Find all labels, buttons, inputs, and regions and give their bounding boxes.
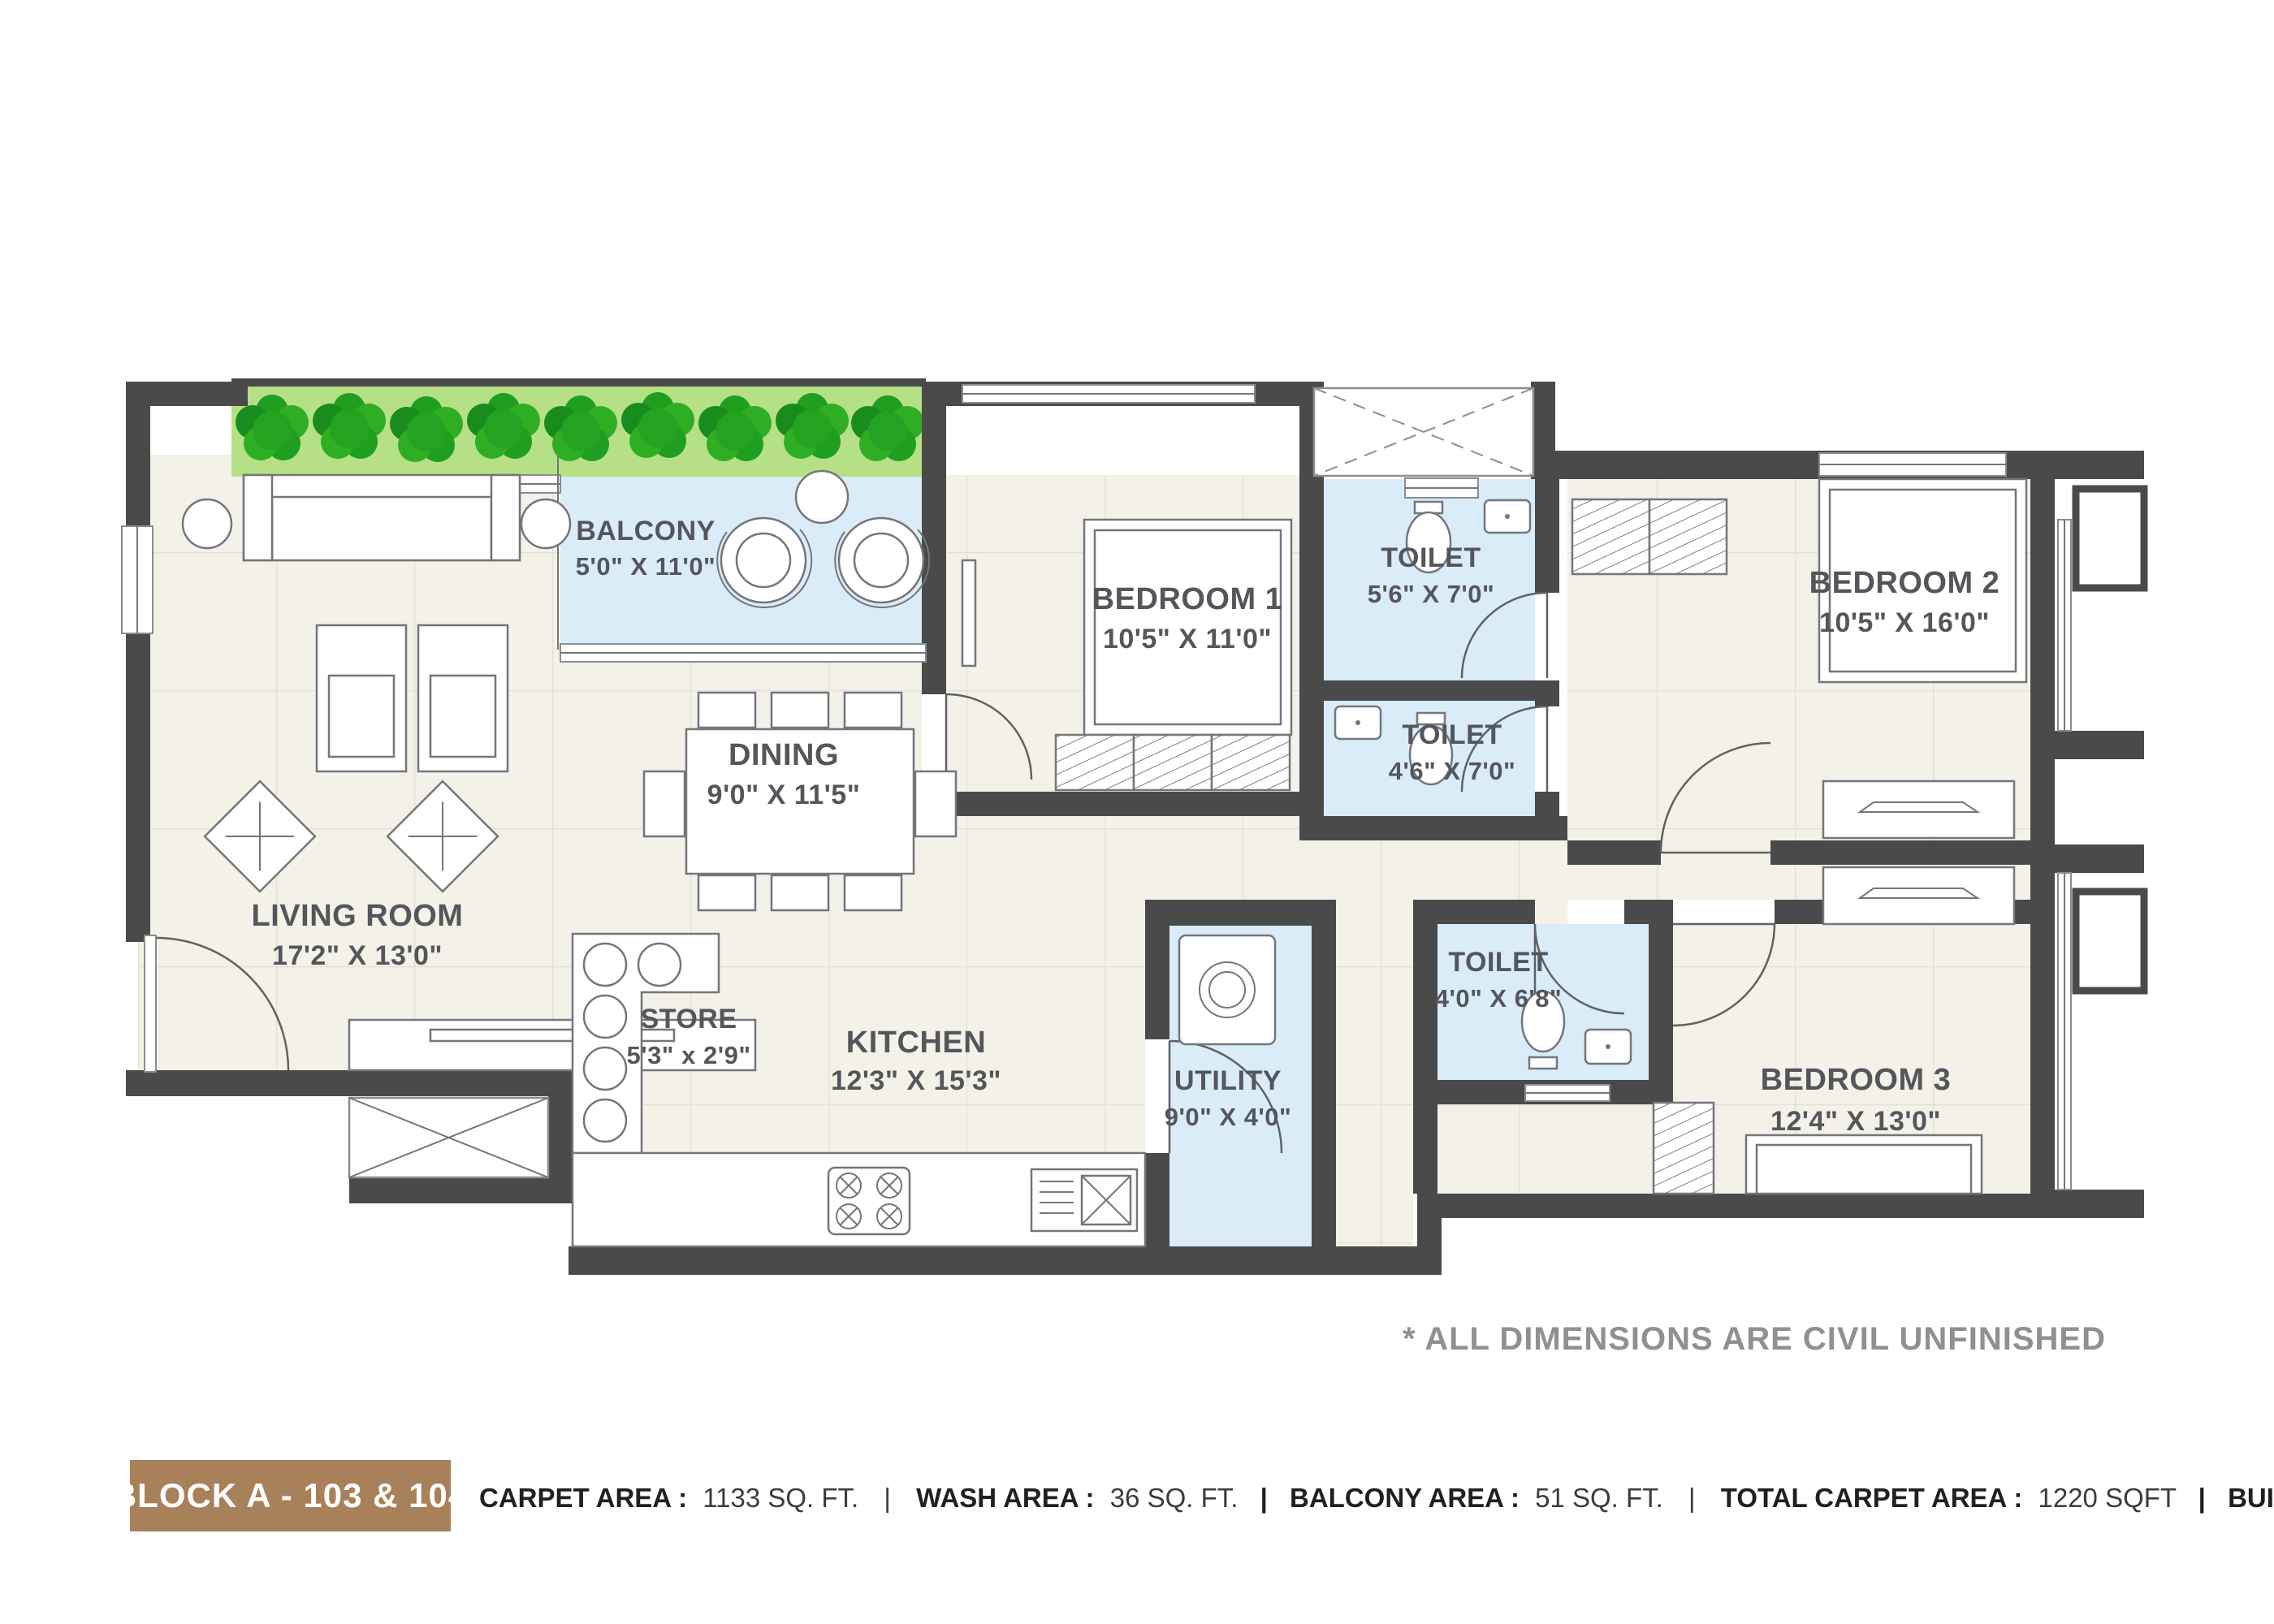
wash-window xyxy=(1405,478,1478,498)
stove xyxy=(828,1168,910,1234)
living-room-label: LIVING ROOM xyxy=(252,899,464,933)
utility-dims: 9'0" X 4'0" xyxy=(1165,1103,1292,1131)
stat-label: TOTAL CARPET AREA : xyxy=(1721,1483,2023,1513)
living-room-dims: 17'2" X 13'0" xyxy=(272,940,443,971)
store-label: STORE xyxy=(640,1004,737,1034)
dining-dims: 9'0" X 11'5" xyxy=(707,780,861,810)
tv-panel xyxy=(962,560,975,666)
stat-label: CARPET AREA : xyxy=(479,1483,687,1513)
duct-box-top xyxy=(2076,489,2144,588)
dresser-top xyxy=(1823,781,2014,838)
stat-value: 1220 SQFT xyxy=(2038,1483,2177,1513)
balcony-label: BALCONY xyxy=(576,516,715,546)
side-table-left xyxy=(183,499,231,548)
store-dims: 5'3" x 2'9" xyxy=(626,1041,750,1069)
accent-chair-1 xyxy=(317,625,406,771)
sink xyxy=(1031,1169,1137,1231)
dresser-bottom xyxy=(1823,867,2014,924)
duct-box-mid xyxy=(2076,892,2144,991)
bedroom2-dims: 10'5" X 16'0" xyxy=(1819,607,1990,638)
toilet3-label: TOILET xyxy=(1448,947,1548,978)
footer: BLOCK A - 103 & 104 CARPET AREA : 1133 S… xyxy=(112,1460,2274,1531)
bedroom2-label: BEDROOM 2 xyxy=(1809,566,2000,600)
bedroom1-label: BEDROOM 1 xyxy=(1092,582,1283,616)
wash-area-hatch xyxy=(1314,388,1533,476)
stat-value: 51 SQ. FT. xyxy=(1535,1483,1663,1513)
bedroom1-top-window xyxy=(962,385,1255,403)
stat-label: BUILTUP AREA : xyxy=(2228,1483,2274,1513)
stat-label: BALCONY AREA : xyxy=(1290,1483,1520,1513)
stat-separator: | xyxy=(2198,1483,2206,1513)
kitchen-counter xyxy=(573,1153,1145,1246)
balcony-table xyxy=(796,471,848,523)
bedroom1-dims: 10'5" X 11'0" xyxy=(1103,624,1272,654)
accent-chair-2 xyxy=(418,625,508,771)
kitchen-dims: 12'3" X 15'3" xyxy=(831,1065,1001,1096)
stat-value: 36 SQ. FT. xyxy=(1110,1483,1239,1513)
kitchen-label: KITCHEN xyxy=(846,1026,986,1060)
wardrobe2 xyxy=(1572,499,1727,574)
bedroom2-top-window xyxy=(1819,453,2006,476)
stat-separator: | xyxy=(1260,1483,1268,1513)
bedroom3-dims: 12'4" X 13'0" xyxy=(1770,1106,1941,1137)
stat-separator: | xyxy=(1688,1483,1696,1513)
planter-hatch xyxy=(349,1098,548,1177)
dimensions-note: * ALL DIMENSIONS ARE CIVIL UNFINISHED xyxy=(1403,1321,2106,1357)
toilet3-dims: 4'0" X 6'8" xyxy=(1435,984,1563,1013)
toilet2-dims: 4'6" X 7'0" xyxy=(1389,757,1516,785)
toilet1-label: TOILET xyxy=(1381,542,1481,573)
toilet2-label: TOILET xyxy=(1402,719,1502,750)
stat-label: WASH AREA : xyxy=(916,1483,1094,1513)
floor-plan-page: LIVING ROOM 17'2" X 13'0" DINING 9'0" X … xyxy=(0,0,2274,1624)
dining-label: DINING xyxy=(728,738,839,772)
greenery-strip xyxy=(231,378,926,477)
sofa xyxy=(244,475,520,560)
block-label: BLOCK A - 103 & 104 xyxy=(112,1476,468,1514)
utility-label: UTILITY xyxy=(1174,1065,1282,1096)
wardrobe3 xyxy=(1654,1103,1714,1194)
toilet1-dims: 5'6" X 7'0" xyxy=(1368,580,1495,608)
washing-machine xyxy=(1179,935,1275,1044)
area-stats: CARPET AREA : 1133 SQ. FT. | WASH AREA :… xyxy=(479,1483,2274,1513)
stat-value: 1133 SQ. FT. xyxy=(703,1483,858,1513)
bed3 xyxy=(1746,1135,1982,1194)
bedroom3-label: BEDROOM 3 xyxy=(1761,1063,1952,1097)
right-bay-windows xyxy=(2058,489,2144,1190)
wardrobe1 xyxy=(1056,735,1290,790)
stat-separator: | xyxy=(884,1483,891,1513)
left-wall-window xyxy=(122,526,153,633)
side-table-right xyxy=(521,499,570,548)
floor-plan-canvas: LIVING ROOM 17'2" X 13'0" DINING 9'0" X … xyxy=(0,0,2274,1624)
balcony-dims: 5'0" X 11'0" xyxy=(576,552,716,581)
